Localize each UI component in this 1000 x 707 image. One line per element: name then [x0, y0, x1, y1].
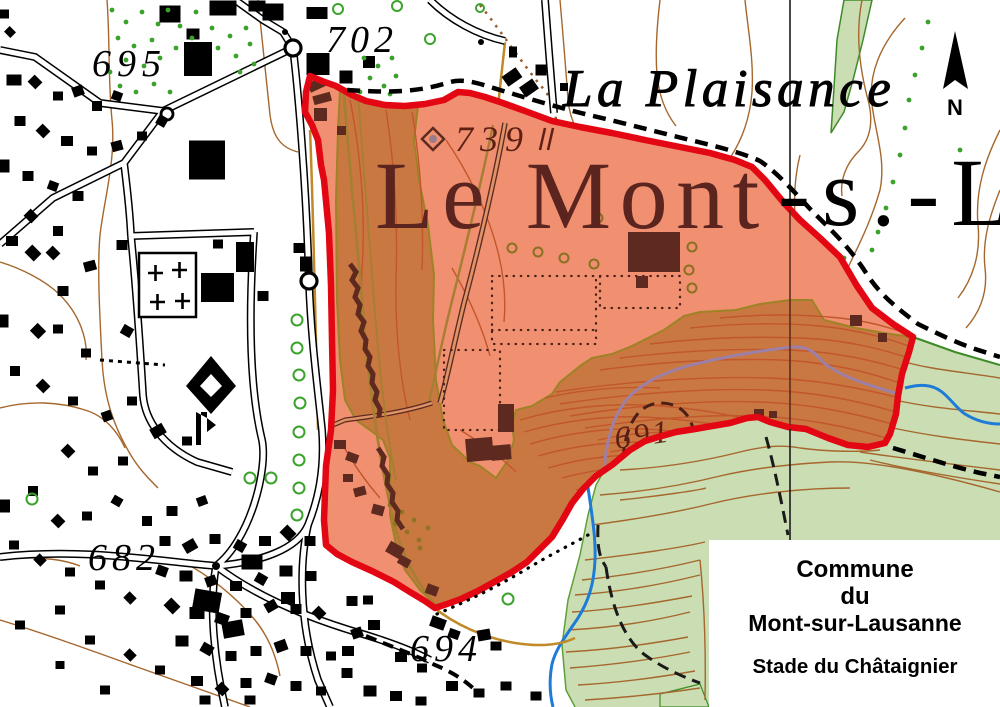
- svg-text:702: 702: [326, 19, 398, 61]
- svg-text:N: N: [947, 95, 963, 120]
- svg-text:-s.-L: -s.-L: [778, 139, 1000, 246]
- svg-text:Le Mont: Le Mont: [375, 142, 768, 249]
- svg-text:Commune: Commune: [796, 556, 913, 583]
- svg-text:La Plaisance: La Plaisance: [562, 60, 895, 118]
- svg-text:695: 695: [92, 43, 167, 85]
- svg-text:694: 694: [410, 628, 482, 670]
- svg-text:Mont-sur-Lausanne: Mont-sur-Lausanne: [748, 610, 961, 636]
- svg-text:682: 682: [88, 537, 160, 579]
- svg-text:Stade du Châtaignier: Stade du Châtaignier: [752, 655, 957, 678]
- svg-text:du: du: [840, 583, 869, 610]
